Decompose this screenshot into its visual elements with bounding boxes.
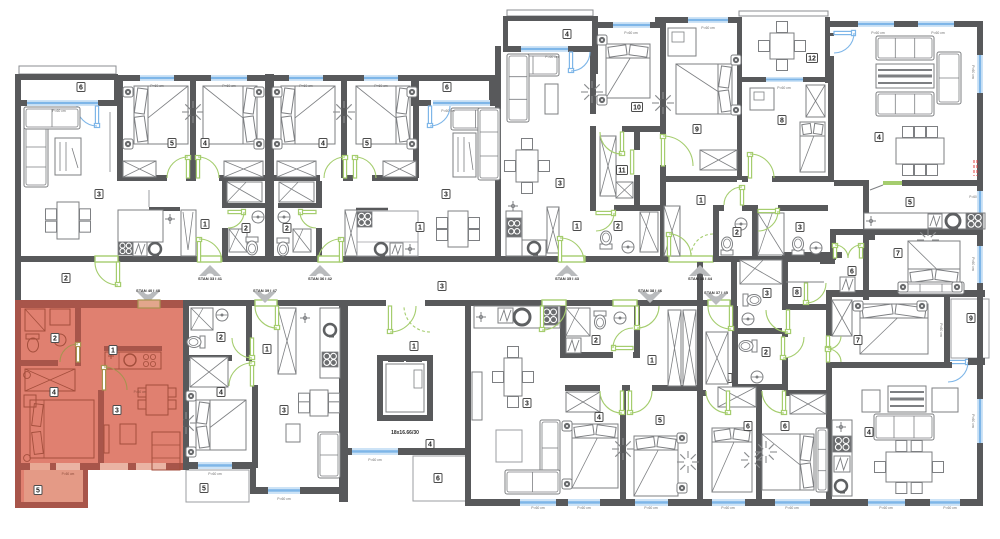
svg-text:7: 7 — [896, 251, 900, 258]
svg-text:P=60 cm: P=60 cm — [150, 84, 164, 88]
svg-text:6: 6 — [436, 476, 440, 483]
svg-text:P=60 cm: P=60 cm — [785, 506, 799, 510]
svg-text:P=60 cm: P=60 cm — [208, 472, 222, 476]
svg-text:P=60 cm: P=60 cm — [971, 414, 975, 428]
svg-text:P=60 cm: P=60 cm — [299, 84, 313, 88]
svg-text:3: 3 — [282, 408, 286, 415]
svg-text:STAN 38 I 44: STAN 38 I 44 — [688, 276, 713, 281]
svg-text:2: 2 — [735, 230, 739, 237]
svg-text:8: 8 — [795, 290, 799, 297]
svg-text:P=60 cm: P=60 cm — [441, 109, 455, 113]
svg-text:1: 1 — [203, 222, 207, 229]
svg-text:5: 5 — [908, 200, 912, 207]
svg-text:P=60 cm: P=60 cm — [52, 109, 66, 113]
svg-text:3: 3 — [798, 225, 802, 232]
svg-text:5: 5 — [170, 141, 174, 148]
svg-text:P=60 cm: P=60 cm — [368, 458, 382, 462]
svg-text:6: 6 — [445, 85, 449, 92]
svg-text:P=60 cm: P=60 cm — [943, 506, 957, 510]
svg-text:P=60 cm: P=60 cm — [721, 506, 735, 510]
svg-text:3: 3 — [558, 181, 562, 188]
svg-text:P=60 cm: P=60 cm — [624, 31, 638, 35]
svg-text:P=60 cm: P=60 cm — [374, 84, 388, 88]
svg-text:P=60 cm: P=60 cm — [644, 506, 658, 510]
svg-text:P=60 cm: P=60 cm — [879, 506, 893, 510]
svg-text:P=60 cm: P=60 cm — [277, 497, 291, 501]
svg-text:1: 1 — [265, 347, 269, 354]
svg-text:P=60 cm: P=60 cm — [545, 55, 559, 59]
svg-text:6: 6 — [850, 269, 854, 276]
svg-text:3: 3 — [97, 192, 101, 199]
svg-text:9: 9 — [695, 127, 699, 134]
svg-text:4: 4 — [867, 430, 871, 437]
svg-text:9: 9 — [969, 316, 973, 323]
svg-text:3: 3 — [444, 192, 448, 199]
svg-text:4: 4 — [428, 442, 432, 449]
svg-text:3: 3 — [765, 291, 769, 298]
svg-text:2: 2 — [616, 224, 620, 231]
svg-text:4: 4 — [565, 32, 569, 39]
svg-text:12: 12 — [808, 56, 816, 63]
svg-text:P=60 cm: P=60 cm — [871, 31, 885, 35]
svg-text:2: 2 — [244, 226, 248, 233]
svg-text:2: 2 — [764, 350, 768, 357]
svg-text:P=60 cm: P=60 cm — [971, 257, 975, 271]
svg-text:P=60 cm: P=60 cm — [531, 506, 545, 510]
svg-text:1: 1 — [650, 358, 654, 365]
svg-text:10: 10 — [633, 105, 641, 112]
svg-text:1: 1 — [699, 198, 703, 205]
svg-text:P=60 cm: P=60 cm — [931, 31, 945, 35]
svg-text:P=60 cm: P=60 cm — [939, 323, 943, 337]
svg-text:STAN 38 I 46: STAN 38 I 46 — [638, 288, 663, 293]
svg-text:P=60 cm: P=60 cm — [701, 26, 715, 30]
svg-text:4: 4 — [203, 141, 207, 148]
svg-text:4: 4 — [52, 390, 56, 397]
svg-text:P=60 cm: P=60 cm — [222, 84, 236, 88]
svg-text:4: 4 — [877, 135, 881, 142]
svg-text:6: 6 — [783, 424, 787, 431]
svg-text:P=60 cm: P=60 cm — [62, 472, 75, 476]
svg-text:2: 2 — [594, 338, 598, 345]
svg-text:P=60 cm: P=60 cm — [577, 506, 591, 510]
svg-text:1: 1 — [418, 225, 422, 232]
svg-text:1: 1 — [575, 224, 579, 231]
svg-text:6: 6 — [746, 424, 750, 431]
svg-text:P=60 cm: P=60 cm — [134, 390, 147, 394]
svg-text:3: 3 — [115, 408, 119, 415]
svg-text:3: 3 — [440, 284, 444, 291]
svg-text:2: 2 — [64, 276, 68, 283]
svg-text:STAN 39 I 47: STAN 39 I 47 — [253, 288, 278, 293]
svg-text:5: 5 — [658, 418, 662, 425]
svg-text:4: 4 — [597, 415, 601, 422]
svg-text:5: 5 — [202, 486, 206, 493]
svg-text:2: 2 — [219, 335, 223, 342]
svg-text:P=60 cm: P=60 cm — [971, 65, 975, 79]
svg-text:7: 7 — [856, 338, 860, 345]
svg-text:STAN 36 I 42: STAN 36 I 42 — [308, 276, 333, 281]
svg-text:STAN 40 I 48: STAN 40 I 48 — [136, 288, 161, 293]
svg-text:5: 5 — [36, 488, 40, 495]
svg-text:STAN 33 I 41: STAN 33 I 41 — [198, 276, 223, 281]
svg-text:4: 4 — [219, 390, 223, 397]
svg-text:8: 8 — [780, 118, 784, 125]
svg-text:4: 4 — [321, 141, 325, 148]
svg-text:STAN 35 I 43: STAN 35 I 43 — [555, 276, 580, 281]
svg-text:3: 3 — [525, 401, 529, 408]
svg-text:1: 1 — [111, 348, 115, 355]
svg-text:5: 5 — [365, 141, 369, 148]
svg-text:P=60 cm: P=60 cm — [777, 86, 791, 90]
svg-text:6: 6 — [79, 85, 83, 92]
svg-text:11: 11 — [618, 168, 626, 175]
svg-text:18x16.66/30: 18x16.66/30 — [391, 430, 419, 436]
svg-text:2: 2 — [53, 336, 57, 343]
svg-text:2: 2 — [285, 226, 289, 233]
svg-text:STAN 37 I 45: STAN 37 I 45 — [704, 290, 729, 295]
svg-text:1: 1 — [412, 344, 416, 351]
svg-text:P=60: P=60 — [969, 195, 977, 199]
